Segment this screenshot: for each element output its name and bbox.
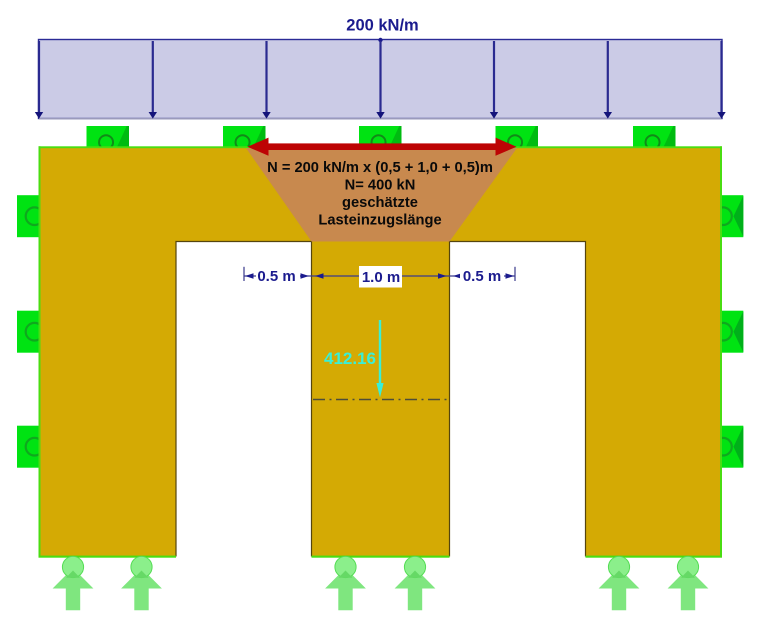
svg-text:0.5 m: 0.5 m (257, 268, 295, 285)
svg-text:geschätzte: geschätzte (342, 195, 418, 211)
svg-text:200 kN/m: 200 kN/m (346, 17, 418, 35)
svg-text:0.5 m: 0.5 m (463, 268, 501, 285)
svg-text:1.0 m: 1.0 m (362, 269, 400, 286)
svg-text:Lasteinzugslänge: Lasteinzugslänge (318, 213, 441, 229)
svg-text:N = 200 kN/m x (0,5 + 1,0 + 0,: N = 200 kN/m x (0,5 + 1,0 + 0,5)m (267, 160, 493, 176)
svg-text:412.16: 412.16 (324, 349, 376, 368)
svg-text:N= 400 kN: N= 400 kN (345, 178, 416, 194)
